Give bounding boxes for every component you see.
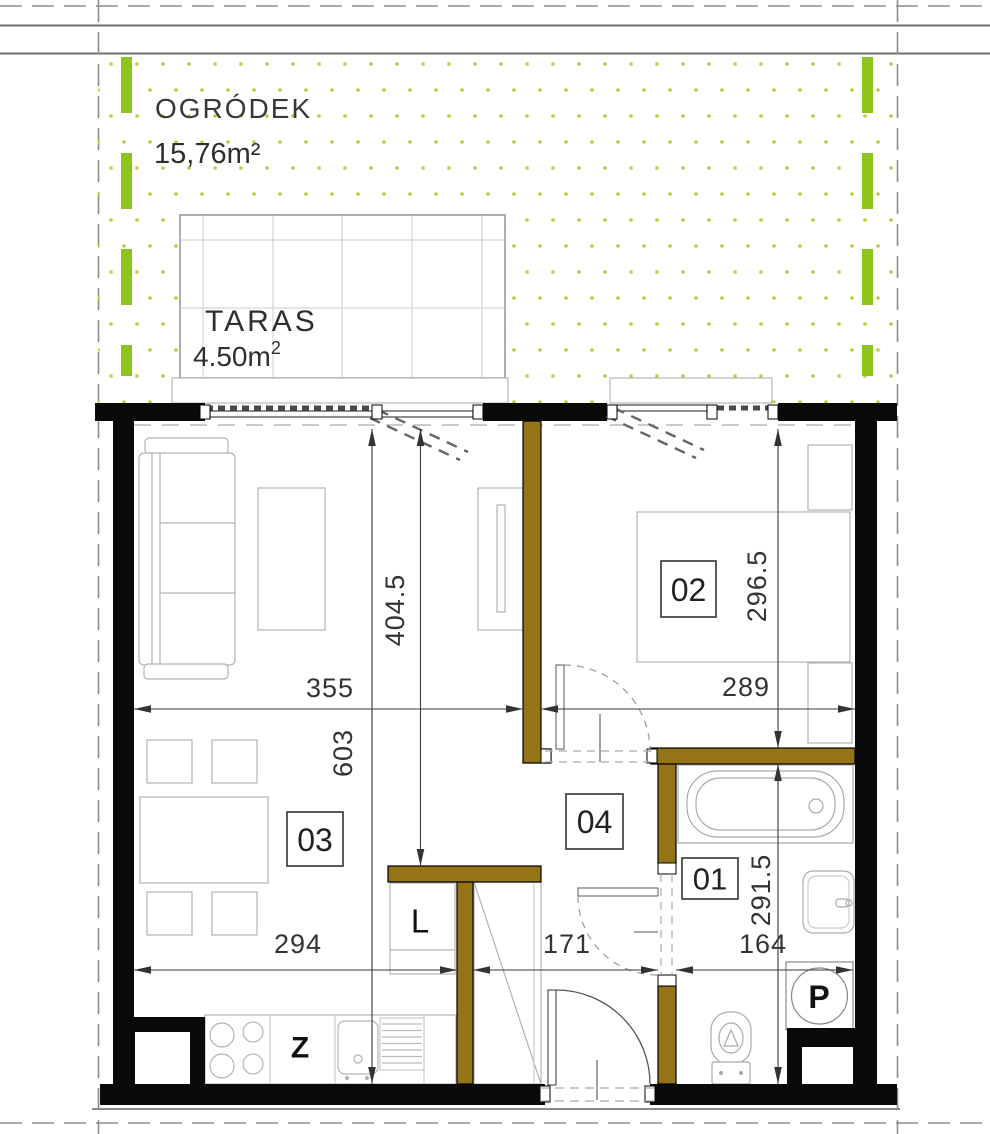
dim-living-width: 355 [306,673,354,703]
balcony-door-swing-bedroom [606,408,704,458]
sofa [139,453,235,665]
dim-living-depth: 404.5 [380,574,410,647]
sink-tap-dot [366,1077,369,1080]
wall-bottom-left [100,1084,545,1105]
bedroom-door-swing [564,665,650,751]
wall-left [113,421,134,1017]
chair [147,892,192,935]
window-frame-bedroom [617,405,707,411]
wall-bottom-right [650,1084,897,1105]
room-04-label: 04 [577,804,613,840]
sofa-armrest-top [145,438,228,454]
dining-table [140,797,268,883]
sink-tap-dot [346,1077,349,1080]
partition-closet-top [388,866,541,882]
toilet-tank [712,1062,750,1084]
terrace-area-value: 4.50m [193,341,271,372]
dim-apartment-depth: 603 [328,729,358,777]
floor-plan: OGRÓDEK 15,76m² TARAS 4.50m2 [0,0,990,1134]
garden-label: OGRÓDEK [155,93,312,124]
entrance-door-swing [556,990,650,1084]
chair [212,740,257,783]
room-01-label: 01 [693,862,727,897]
toilet-button [720,1072,723,1075]
terrace-area-label: 4.50m2 [193,338,281,372]
toilet-bowl [711,1012,751,1064]
garden-area-label: 15,76m² [154,138,261,170]
room-03-label: 03 [297,822,333,858]
fridge-label: L [411,903,429,940]
wall-top-middle [483,403,607,421]
sofa-armrest-bottom [144,664,228,679]
terrace-area-exponent: 2 [271,338,281,358]
washer-label: P [808,979,829,1015]
dim-bathroom-width: 164 [739,929,787,959]
dim-bathroom-depth: 291.5 [746,854,776,927]
hall-wardrobe [474,882,541,1084]
partition-bathroom-left-lower [658,986,676,1084]
partition-closet-side [457,882,473,1084]
partition-bathroom-top [651,748,855,764]
entrance-door-leaf [548,990,556,1085]
window-sill-strip [610,378,772,403]
dim-bedroom-width: 289 [722,672,770,702]
bathroom-door [578,874,672,975]
toilet-button [740,1072,743,1075]
bedroom-door [545,665,655,762]
floor-plan-svg: OGRÓDEK 15,76m² TARAS 4.50m2 [0,0,990,1134]
wall-top-right [778,403,897,421]
coffee-table [258,488,325,630]
wall-right [855,421,877,1028]
room-02-label: 02 [671,572,707,608]
shaft-left [135,1032,190,1084]
nightstand [808,445,852,510]
dim-dining-width: 294 [274,929,322,959]
chair [147,740,192,783]
dim-hall-width: 171 [543,929,591,959]
partition-living-hall [523,421,551,763]
terrace-label: TARAS [205,305,318,338]
bathtub-enclosure [678,765,853,843]
tv [497,505,505,612]
wall-top-left [95,403,205,421]
bathroom-door-leaf [578,888,658,896]
nightstand [808,663,852,743]
entrance-door [540,990,656,1101]
chair [212,892,257,935]
dim-bedroom-depth: 296.5 [742,550,772,623]
kitchen-label: Z [291,1032,309,1065]
terrace-step [172,378,508,403]
window-frame-living [210,411,473,417]
shaft-right [802,1047,853,1084]
partition-bathroom-left-upper [658,764,676,864]
